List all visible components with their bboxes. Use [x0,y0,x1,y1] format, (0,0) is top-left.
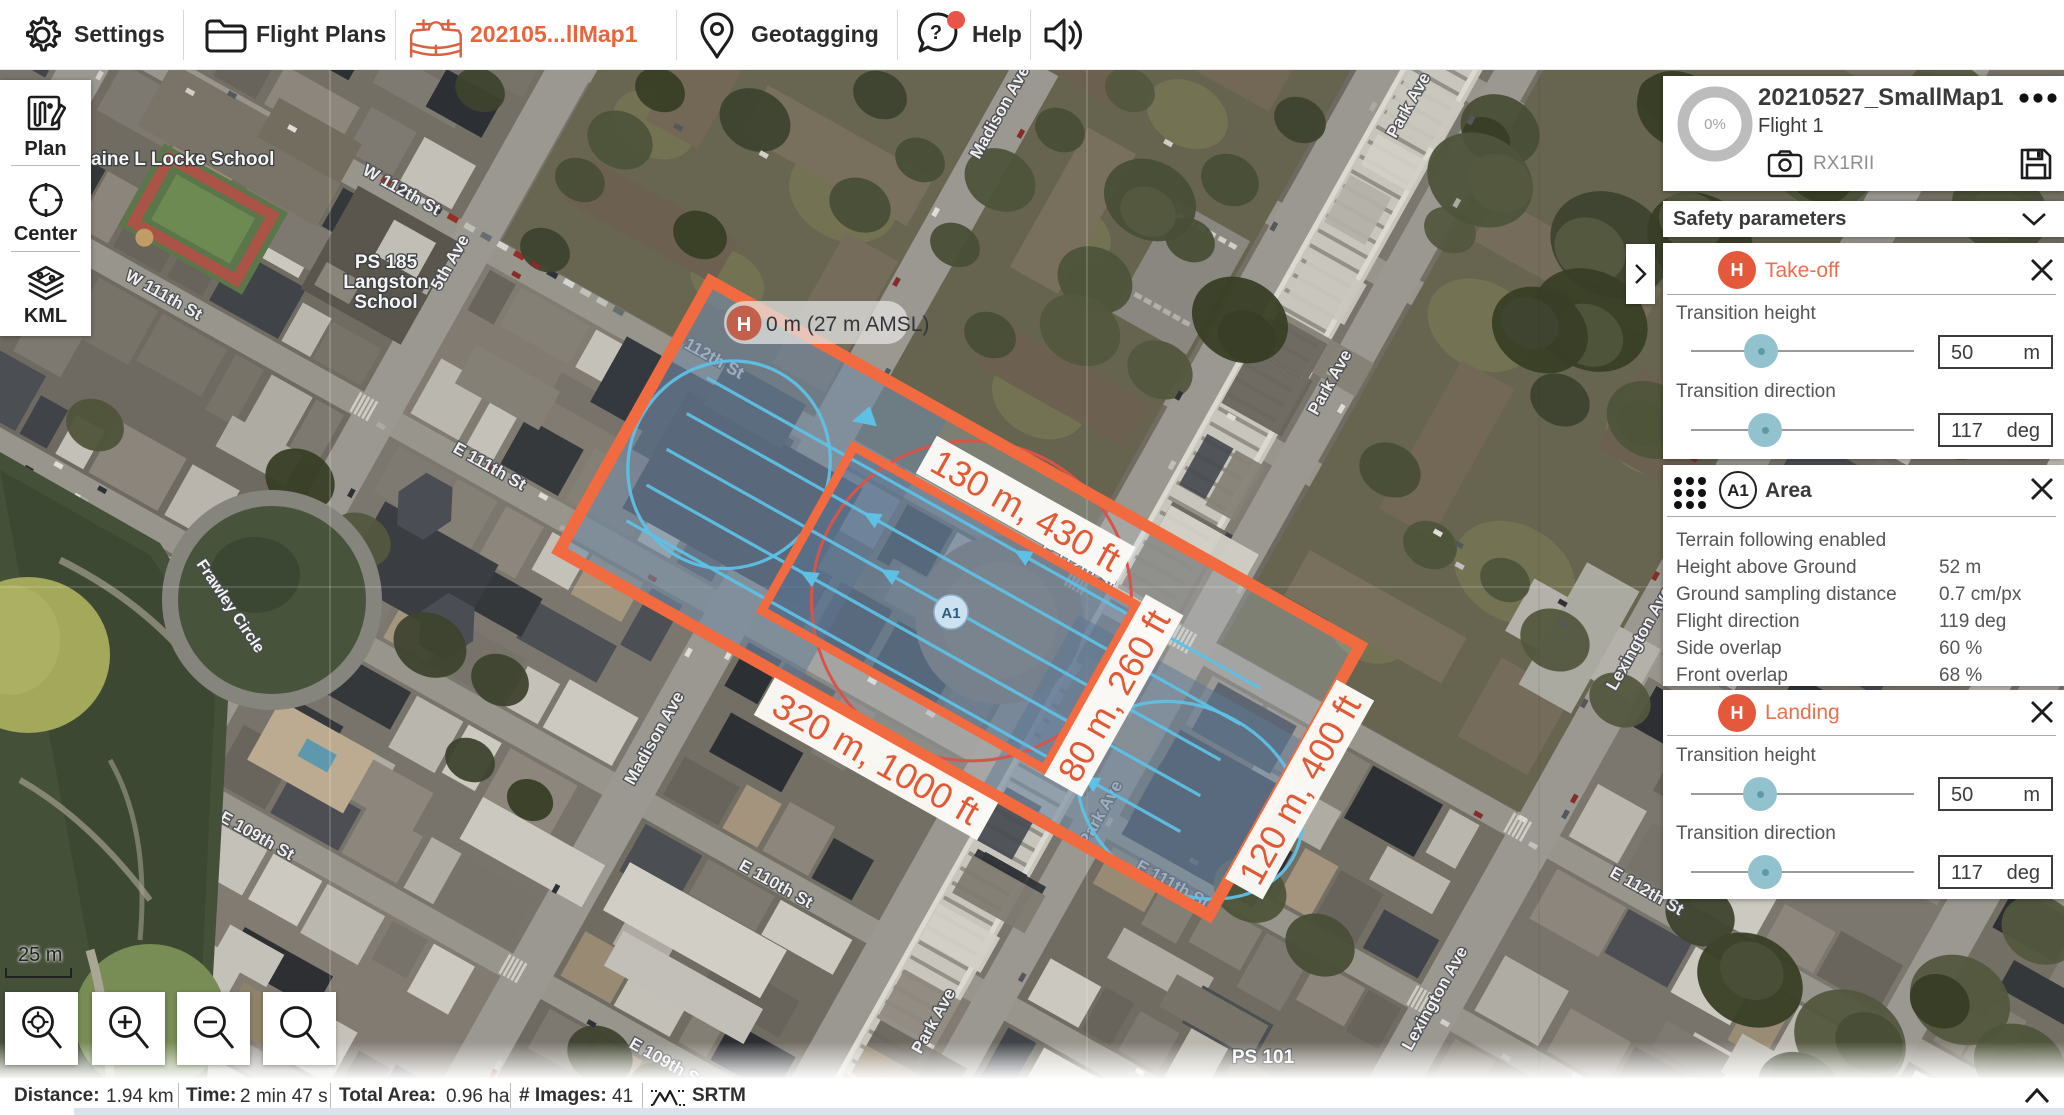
svg-text:0%: 0% [1704,116,1726,133]
svg-text:?: ? [930,22,942,44]
svg-text:A1: A1 [941,605,960,622]
svg-text:H: H [737,314,751,336]
svg-text:0 m (27 m AMSL): 0 m (27 m AMSL) [766,313,929,336]
